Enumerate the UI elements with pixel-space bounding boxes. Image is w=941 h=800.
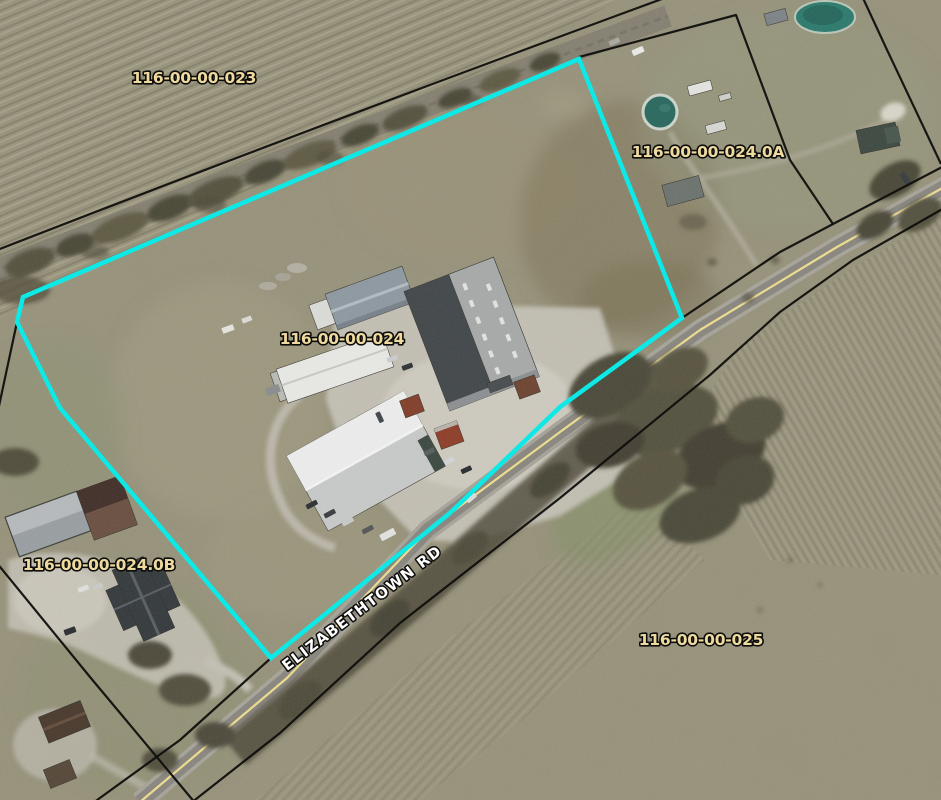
parcel-label-024-0b[interactable]: 116-00-00-024.0B xyxy=(23,556,175,574)
parcel-label-025[interactable]: 116-00-00-025 xyxy=(639,631,764,649)
parcel-label-024-0a[interactable]: 116-00-00-024.0A xyxy=(632,143,785,161)
parcel-label-024[interactable]: 116-00-00-024 xyxy=(280,330,405,348)
grain-overlay xyxy=(0,0,941,800)
aerial-imagery: 116-00-00-023 116-00-00-024.0A 116-00-00… xyxy=(0,0,941,800)
parcel-label-023[interactable]: 116-00-00-023 xyxy=(132,69,257,87)
gis-aerial-map[interactable]: 116-00-00-023 116-00-00-024.0A 116-00-00… xyxy=(0,0,941,800)
